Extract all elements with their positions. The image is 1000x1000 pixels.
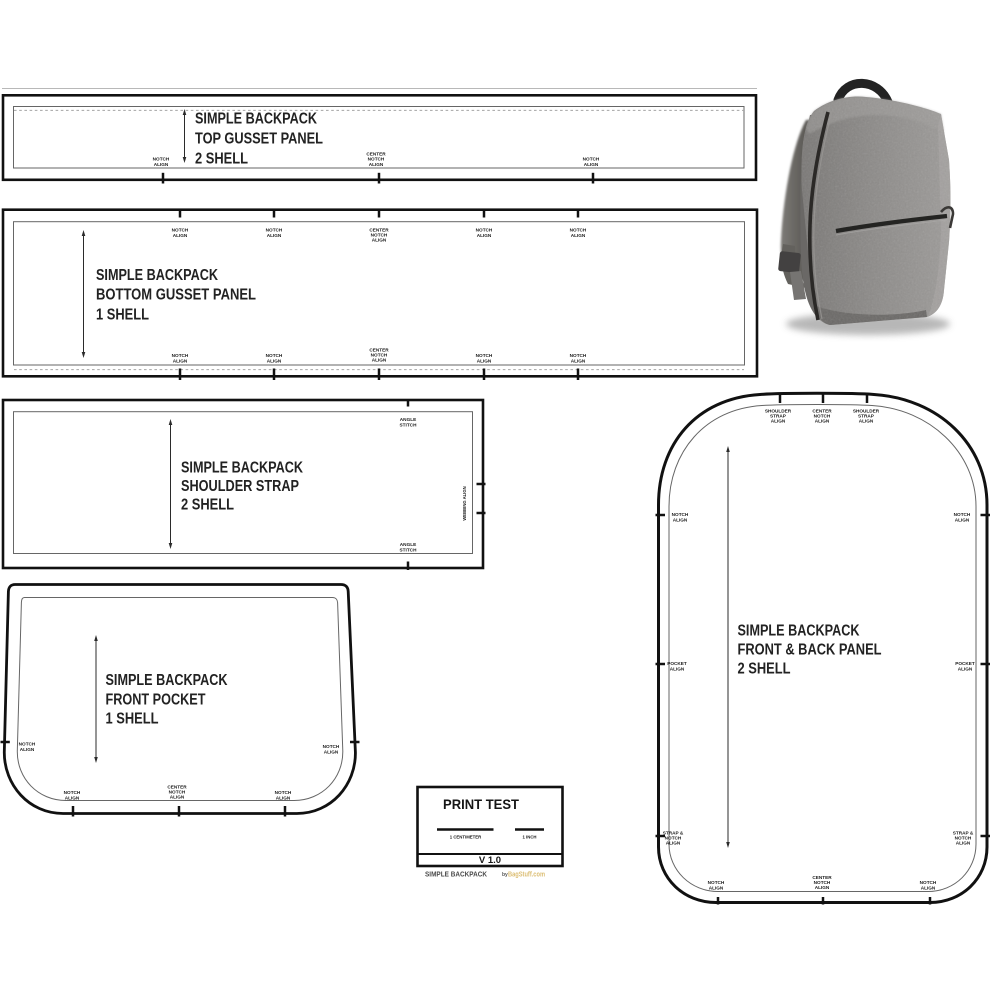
svg-text:NOTCHALIGN: NOTCHALIGN [266, 353, 283, 364]
svg-text:PRINT TEST: PRINT TEST [443, 796, 519, 812]
svg-text:ANGLESTITCH: ANGLESTITCH [400, 417, 418, 428]
svg-text:1 INCH: 1 INCH [522, 835, 536, 840]
svg-text:CENTERNOTCHALIGN: CENTERNOTCHALIGN [369, 228, 389, 243]
svg-text:CENTERNOTCHALIGN: CENTERNOTCHALIGN [369, 348, 389, 363]
svg-text:SHOULDERSTRAPALIGN: SHOULDERSTRAPALIGN [853, 409, 880, 424]
svg-text:SIMPLE BACKPACKFRONT POCKET1 S: SIMPLE BACKPACKFRONT POCKET1 SHELL [106, 672, 228, 728]
svg-text:SIMPLE BACKPACKTOP GUSSET PANE: SIMPLE BACKPACKTOP GUSSET PANEL2 SHELL [195, 111, 323, 168]
svg-text:STRAP &NOTCHALIGN: STRAP &NOTCHALIGN [663, 831, 684, 846]
svg-text:NOTCHALIGN: NOTCHALIGN [954, 512, 971, 523]
svg-text:SIMPLE BACKPACKSHOULDER STRAP2: SIMPLE BACKPACKSHOULDER STRAP2 SHELL [181, 460, 303, 514]
svg-text:NOTCHALIGN: NOTCHALIGN [275, 790, 292, 801]
svg-text:SHOULDERSTRAPALIGN: SHOULDERSTRAPALIGN [765, 409, 792, 424]
svg-text:BagStuff.com: BagStuff.com [508, 872, 545, 879]
svg-text:SIMPLE BACKPACK: SIMPLE BACKPACK [425, 870, 487, 879]
svg-text:CENTERNOTCHALIGN: CENTERNOTCHALIGN [366, 152, 386, 167]
svg-text:NOTCHALIGN: NOTCHALIGN [570, 228, 587, 239]
svg-text:NOTCHALIGN: NOTCHALIGN [172, 228, 189, 239]
svg-text:NOTCHALIGN: NOTCHALIGN [19, 742, 36, 753]
svg-text:ANGLESTITCH: ANGLESTITCH [400, 542, 418, 553]
svg-text:NOTCHALIGN: NOTCHALIGN [64, 790, 81, 801]
svg-text:NOTCHALIGN: NOTCHALIGN [476, 228, 493, 239]
svg-text:POCKETALIGN: POCKETALIGN [955, 661, 975, 672]
svg-text:WEBBING ALIGN: WEBBING ALIGN [462, 486, 467, 520]
svg-text:NOTCHALIGN: NOTCHALIGN [323, 744, 340, 755]
svg-text:STRAP &NOTCHALIGN: STRAP &NOTCHALIGN [953, 831, 974, 846]
svg-text:CENTERNOTCHALIGN: CENTERNOTCHALIGN [167, 785, 187, 800]
svg-text:SIMPLE BACKPACKBOTTOM GUSSET P: SIMPLE BACKPACKBOTTOM GUSSET PANEL1 SHEL… [96, 267, 256, 323]
svg-text:NOTCHALIGN: NOTCHALIGN [672, 512, 689, 523]
svg-text:CENTERNOTCHALIGN: CENTERNOTCHALIGN [812, 875, 832, 890]
svg-text:NOTCHALIGN: NOTCHALIGN [570, 353, 587, 364]
svg-text:NOTCHALIGN: NOTCHALIGN [920, 880, 937, 891]
svg-text:1 CENTIMETER: 1 CENTIMETER [450, 835, 482, 840]
svg-text:SIMPLE BACKPACKFRONT & BACK PA: SIMPLE BACKPACKFRONT & BACK PANEL2 SHELL [738, 623, 882, 678]
svg-text:NOTCHALIGN: NOTCHALIGN [266, 228, 283, 239]
svg-text:NOTCHALIGN: NOTCHALIGN [476, 353, 493, 364]
svg-text:NOTCHALIGN: NOTCHALIGN [172, 353, 189, 364]
svg-text:V 1.0: V 1.0 [479, 855, 501, 866]
svg-text:NOTCHALIGN: NOTCHALIGN [583, 157, 600, 168]
svg-text:CENTERNOTCHALIGN: CENTERNOTCHALIGN [812, 409, 832, 424]
svg-text:NOTCHALIGN: NOTCHALIGN [153, 157, 170, 168]
svg-text:POCKETALIGN: POCKETALIGN [667, 661, 687, 672]
svg-text:NOTCHALIGN: NOTCHALIGN [708, 880, 725, 891]
